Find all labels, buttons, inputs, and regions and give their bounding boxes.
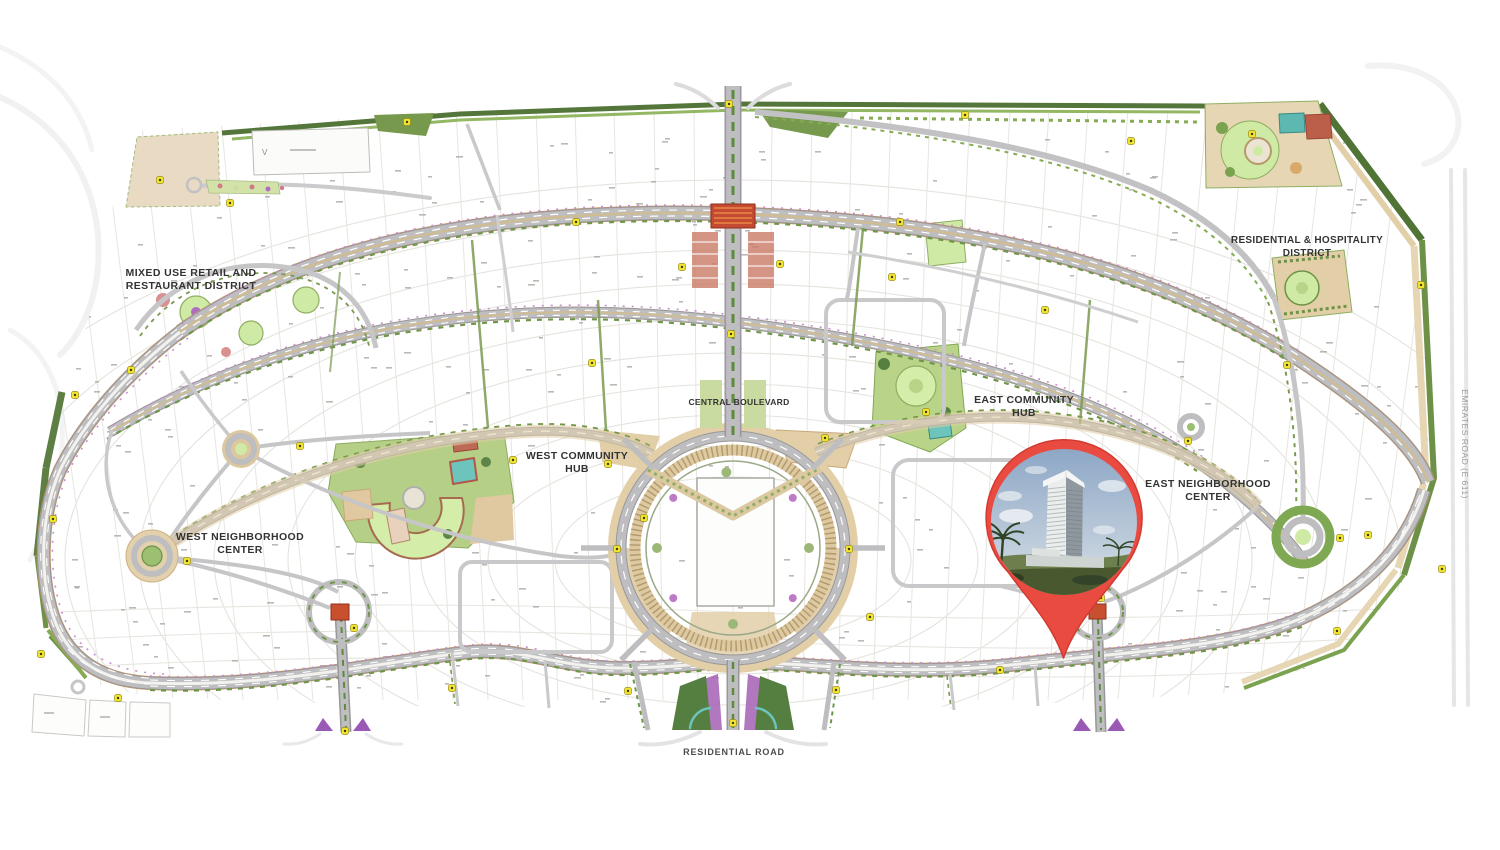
svg-text:DISTRICT: DISTRICT bbox=[1283, 248, 1332, 259]
svg-text:V: V bbox=[262, 148, 268, 157]
svg-text:CENTER: CENTER bbox=[1185, 491, 1231, 503]
svg-text:CENTRAL BOULEVARD: CENTRAL BOULEVARD bbox=[688, 397, 789, 407]
svg-text:EAST COMMUNITY: EAST COMMUNITY bbox=[974, 394, 1074, 406]
svg-text:EMIRATES ROAD (E 611): EMIRATES ROAD (E 611) bbox=[1460, 389, 1470, 499]
svg-text:RESTAURANT DISTRICT: RESTAURANT DISTRICT bbox=[126, 280, 257, 292]
svg-text:RESIDENTIAL ROAD: RESIDENTIAL ROAD bbox=[683, 747, 785, 757]
svg-text:WEST NEIGHBORHOOD: WEST NEIGHBORHOOD bbox=[176, 531, 304, 543]
svg-text:CENTER: CENTER bbox=[217, 544, 263, 556]
svg-text:MIXED USE RETAIL AND: MIXED USE RETAIL AND bbox=[126, 267, 257, 279]
svg-text:HUB: HUB bbox=[1012, 407, 1036, 419]
svg-text:EAST NEIGHBORHOOD: EAST NEIGHBORHOOD bbox=[1145, 478, 1271, 490]
svg-text:HUB: HUB bbox=[565, 463, 589, 475]
svg-text:WEST COMMUNITY: WEST COMMUNITY bbox=[526, 450, 628, 462]
svg-text:RESIDENTIAL & HOSPITALITY: RESIDENTIAL & HOSPITALITY bbox=[1231, 235, 1383, 246]
